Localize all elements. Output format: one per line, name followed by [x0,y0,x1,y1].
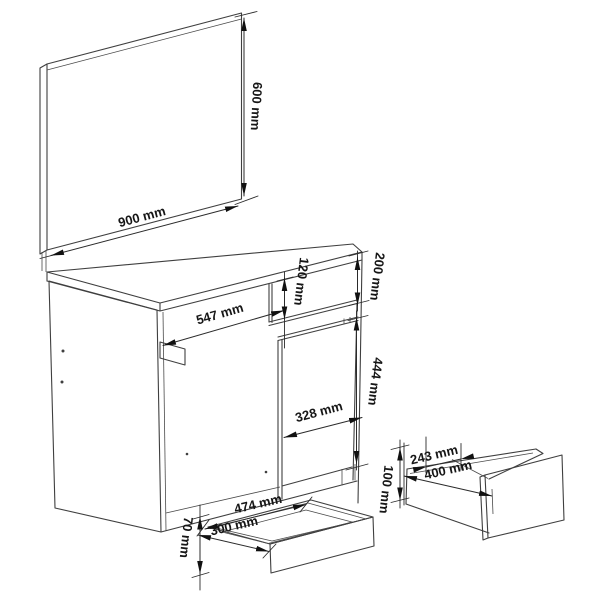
dim-label-drawer-front-height: 120 mm [291,257,312,307]
dim-label-bottom-drawer-height: 70 mm [177,516,196,559]
dim-label-top-section-height: 200 mm [367,252,388,302]
dim-door-height: 444 mm [346,311,386,470]
dim-door-width: 328 mm [284,398,362,437]
dim-bottom-drawer-height: 70 mm [177,505,209,590]
dim-inner-width: 547 mm [163,300,284,346]
desk-top [47,244,362,311]
dim-label-side-drawer-height: 100 mm [376,465,396,515]
dim-label-door-width: 328 mm [294,398,345,425]
desk-open-compartment [160,342,280,513]
technical-drawing: 600 mm 900 mm 547 mm 120 mm 200 mm 444 m… [0,0,600,600]
desk-left-side-panel [49,281,166,532]
dim-drawer-front-height: 120 mm [277,257,312,348]
dim-mirror-height: 600 mm [235,12,265,205]
dim-label-door-height: 444 mm [365,357,386,407]
dim-mirror-width: 900 mm [40,203,238,258]
mirror-panel [40,13,242,272]
drawer-box-small [208,500,374,573]
dim-top-section-height: 200 mm [349,251,388,311]
desk-door [278,304,358,501]
dim-label-mirror-height: 600 mm [248,82,266,131]
dim-label-mirror-width: 900 mm [117,203,168,230]
furniture-diagram: 600 mm 900 mm 547 mm 120 mm 200 mm 444 m… [0,0,600,600]
dim-label-bottom-drawer-width: 474 mm [233,491,284,517]
dim-label-inner-width: 547 mm [194,300,245,328]
